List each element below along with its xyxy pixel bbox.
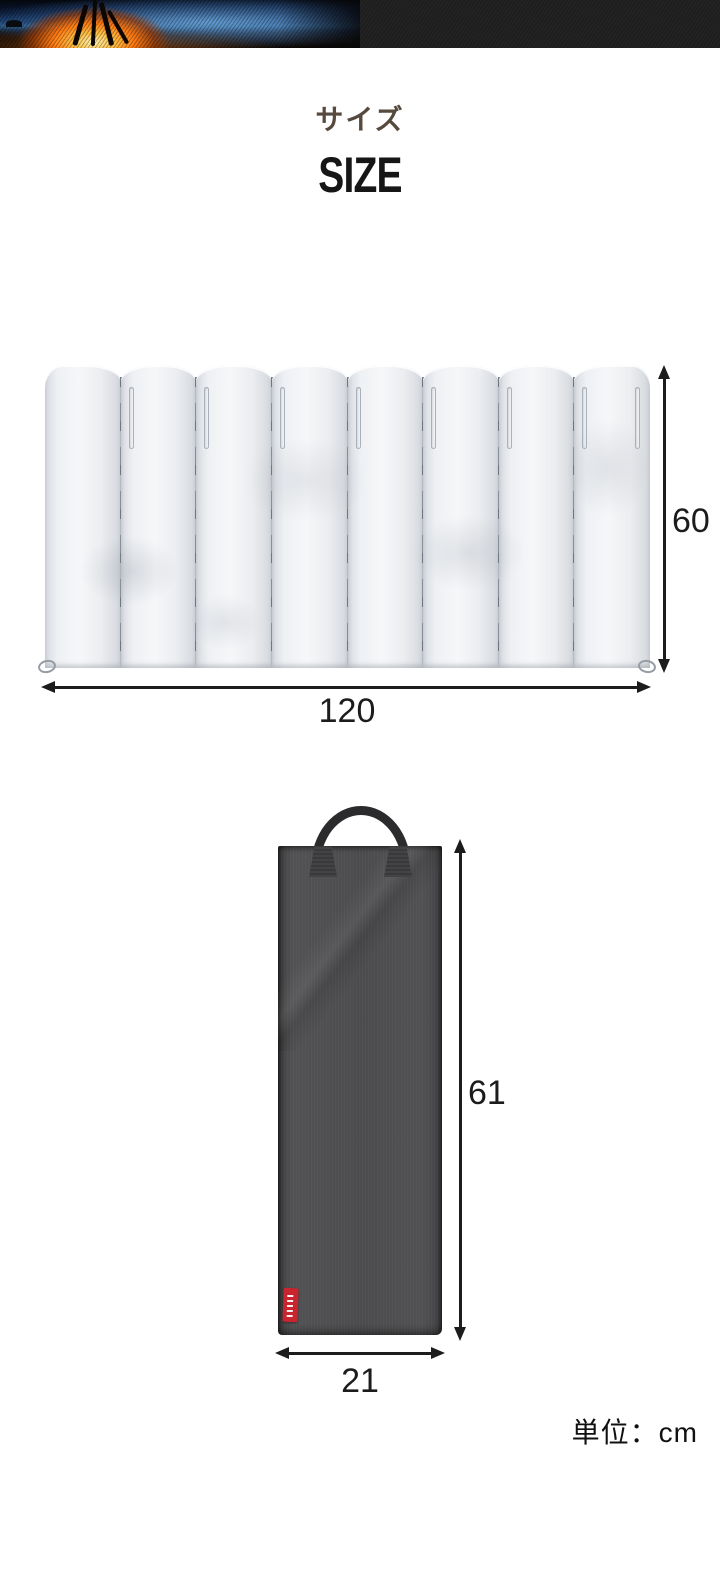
windscreen-panel — [121, 365, 197, 668]
size-info-page: サイズ SIZE 60 120 61 21 単位：cm — [0, 0, 720, 1580]
windscreen-panel — [423, 365, 499, 668]
windscreen-panel — [45, 365, 121, 668]
page-title-size: SIZE — [79, 150, 641, 200]
driftwood-stick — [72, 4, 88, 46]
windscreen-foot-left — [37, 658, 57, 674]
windscreen-panels — [45, 365, 650, 668]
windscreen-panel — [196, 365, 272, 668]
campfire-beach-photo — [0, 0, 360, 48]
windscreen-panel — [574, 365, 650, 668]
driftwood-stick — [99, 2, 114, 46]
windscreen-panel — [499, 365, 575, 668]
windscreen-foot-right — [637, 659, 657, 675]
windscreen-panel — [348, 365, 424, 668]
brand-tag — [282, 1288, 298, 1323]
bag-width-label: 21 — [300, 1364, 420, 1398]
windscreen-width-arrow — [48, 686, 644, 689]
carry-bag-figure — [278, 846, 442, 1335]
bag-height-arrow — [459, 846, 462, 1334]
bag-width-arrow — [282, 1352, 438, 1355]
windscreen-height-label: 60 — [672, 504, 710, 538]
windscreen-panel — [272, 365, 348, 668]
windscreen-height-arrow — [663, 372, 666, 666]
unit-note: 単位：cm — [572, 1416, 698, 1450]
driftwood-stick — [91, 0, 97, 46]
banner-dark-panel — [360, 0, 720, 48]
windscreen-figure — [45, 365, 650, 668]
photo-fade-edge — [280, 0, 360, 48]
bag-height-label: 61 — [468, 1076, 506, 1110]
page-subtitle-jp: サイズ — [0, 106, 720, 134]
sea-rock-silhouette — [6, 20, 22, 27]
windscreen-width-label: 120 — [287, 694, 407, 728]
hero-banner — [0, 0, 720, 48]
